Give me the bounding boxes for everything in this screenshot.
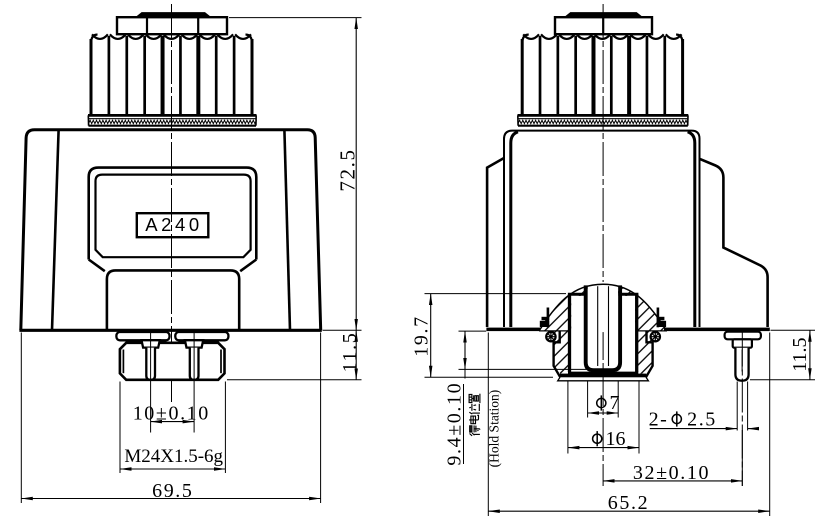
svg-text:2-: 2- — [649, 408, 669, 430]
svg-text:7: 7 — [610, 392, 620, 414]
svg-text:11.5: 11.5 — [789, 337, 811, 371]
svg-text:19.7: 19.7 — [411, 315, 433, 356]
svg-text:2.5: 2.5 — [687, 408, 717, 430]
svg-text:10±0.10: 10±0.10 — [133, 402, 210, 424]
svg-text:A240: A240 — [145, 214, 203, 235]
svg-text:M24X1.5-6g: M24X1.5-6g — [124, 446, 223, 467]
svg-text:16: 16 — [606, 428, 626, 450]
svg-text:9.4±0.10: 9.4±0.10 — [444, 382, 466, 466]
svg-text:11.5: 11.5 — [339, 332, 361, 373]
